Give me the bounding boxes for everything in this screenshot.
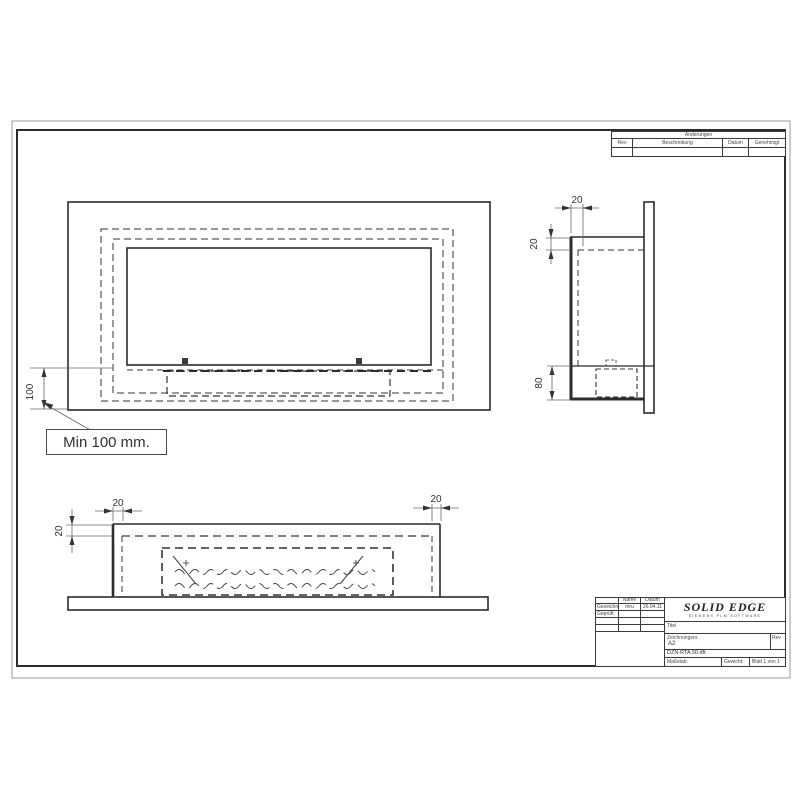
drawing-number-cell: Zeichnungsnr. A2 Rev bbox=[665, 633, 785, 649]
logo-text: SOLID EDGE bbox=[684, 601, 766, 613]
date-column-header: Datum bbox=[640, 598, 664, 603]
revision-empty-row bbox=[612, 148, 785, 156]
dim-label-20: 20 bbox=[112, 498, 124, 509]
revision-col-rev: Rev bbox=[612, 139, 633, 147]
title-block: Name Datum Gezeichnet mru 26.04.11 Geprü… bbox=[595, 597, 786, 667]
revision-table: Änderungen Rev Beschreibung Datum Genehm… bbox=[611, 131, 786, 157]
solid-edge-logo: SOLID EDGE SIEMENS PLM SOFTWARE bbox=[665, 598, 785, 621]
cad-drawing-canvas: 100 20 bbox=[0, 0, 800, 800]
dim-label-20: 20 bbox=[430, 494, 442, 505]
revision-col-date: Datum bbox=[723, 139, 749, 147]
drawn-label: Gezeichnet bbox=[596, 604, 618, 610]
scale-label: Maßstab: bbox=[665, 658, 722, 666]
title-block-signatures: Name Datum Gezeichnet mru 26.04.11 Geprü… bbox=[596, 598, 664, 666]
drawn-date-value: 26.04.11 bbox=[640, 604, 664, 610]
revision-table-title: Änderungen bbox=[612, 132, 785, 139]
min-distance-callout: Min 100 mm. bbox=[46, 429, 167, 455]
dim-label-100: 100 bbox=[25, 383, 36, 400]
dim-label-80: 80 bbox=[534, 377, 545, 389]
file-name-cell: DZN-RTA 50.dft bbox=[665, 649, 785, 657]
front-clip-right bbox=[356, 358, 362, 364]
drawing-sheet-page: 100 20 bbox=[0, 0, 800, 800]
dim-label-20: 20 bbox=[571, 195, 583, 206]
notes-area bbox=[596, 632, 664, 666]
sheet-border bbox=[12, 121, 790, 678]
rev-cell: Rev bbox=[770, 634, 785, 649]
title-block-main: SOLID EDGE SIEMENS PLM SOFTWARE Titel Ze… bbox=[664, 598, 785, 666]
revision-table-header-row: Rev Beschreibung Datum Genehmigt bbox=[612, 139, 785, 148]
revision-col-description: Beschreibung bbox=[633, 139, 723, 147]
sheet-number-label: Blatt 1 von 1 bbox=[750, 658, 785, 666]
revision-col-approved: Genehmigt bbox=[749, 139, 785, 147]
title-label: Titel bbox=[667, 623, 676, 629]
rev-label: Rev bbox=[772, 635, 781, 641]
title-block-bottom-row: Maßstab: Gewicht: Blatt 1 von 1 bbox=[665, 657, 785, 666]
title-cell: Titel bbox=[665, 621, 785, 633]
weight-label: Gewicht: bbox=[722, 658, 750, 666]
dim-label-20: 20 bbox=[54, 525, 65, 537]
checked-label: Geprüft bbox=[596, 611, 618, 617]
logo-subtext: SIEMENS PLM SOFTWARE bbox=[689, 614, 762, 618]
dim-label-20: 20 bbox=[529, 238, 540, 250]
name-column-header: Name bbox=[618, 598, 640, 603]
sheet-size-value: A2 bbox=[668, 641, 675, 647]
front-clip-left bbox=[182, 358, 188, 364]
drawn-name-value: mru bbox=[618, 604, 640, 610]
min-distance-callout-text: Min 100 mm. bbox=[63, 434, 150, 451]
